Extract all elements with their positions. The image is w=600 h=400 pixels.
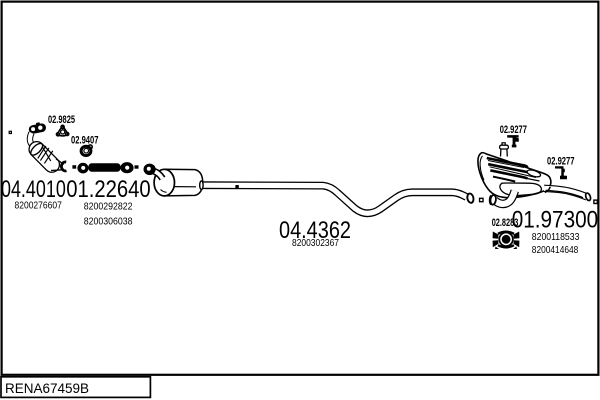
svg-text:01.22640: 01.22640 [66, 176, 151, 203]
svg-text:8200276607: 8200276607 [15, 200, 62, 212]
svg-text:RENA67459B: RENA67459B [5, 381, 89, 396]
svg-text:02.9277: 02.9277 [547, 156, 575, 168]
svg-text:8200414648: 8200414648 [532, 244, 579, 256]
svg-text:8200302367: 8200302367 [292, 237, 339, 249]
svg-text:02.9277: 02.9277 [500, 124, 527, 136]
svg-text:60: 60 [504, 237, 509, 243]
svg-text:02.9825: 02.9825 [48, 114, 75, 126]
svg-text:02.8283: 02.8283 [492, 217, 519, 229]
svg-text:8200118533: 8200118533 [532, 231, 580, 243]
svg-text:01.97300: 01.97300 [512, 206, 599, 233]
svg-text:02.9407: 02.9407 [71, 135, 99, 147]
svg-text:8200306038: 8200306038 [84, 216, 133, 228]
svg-text:8200292822: 8200292822 [84, 201, 133, 213]
